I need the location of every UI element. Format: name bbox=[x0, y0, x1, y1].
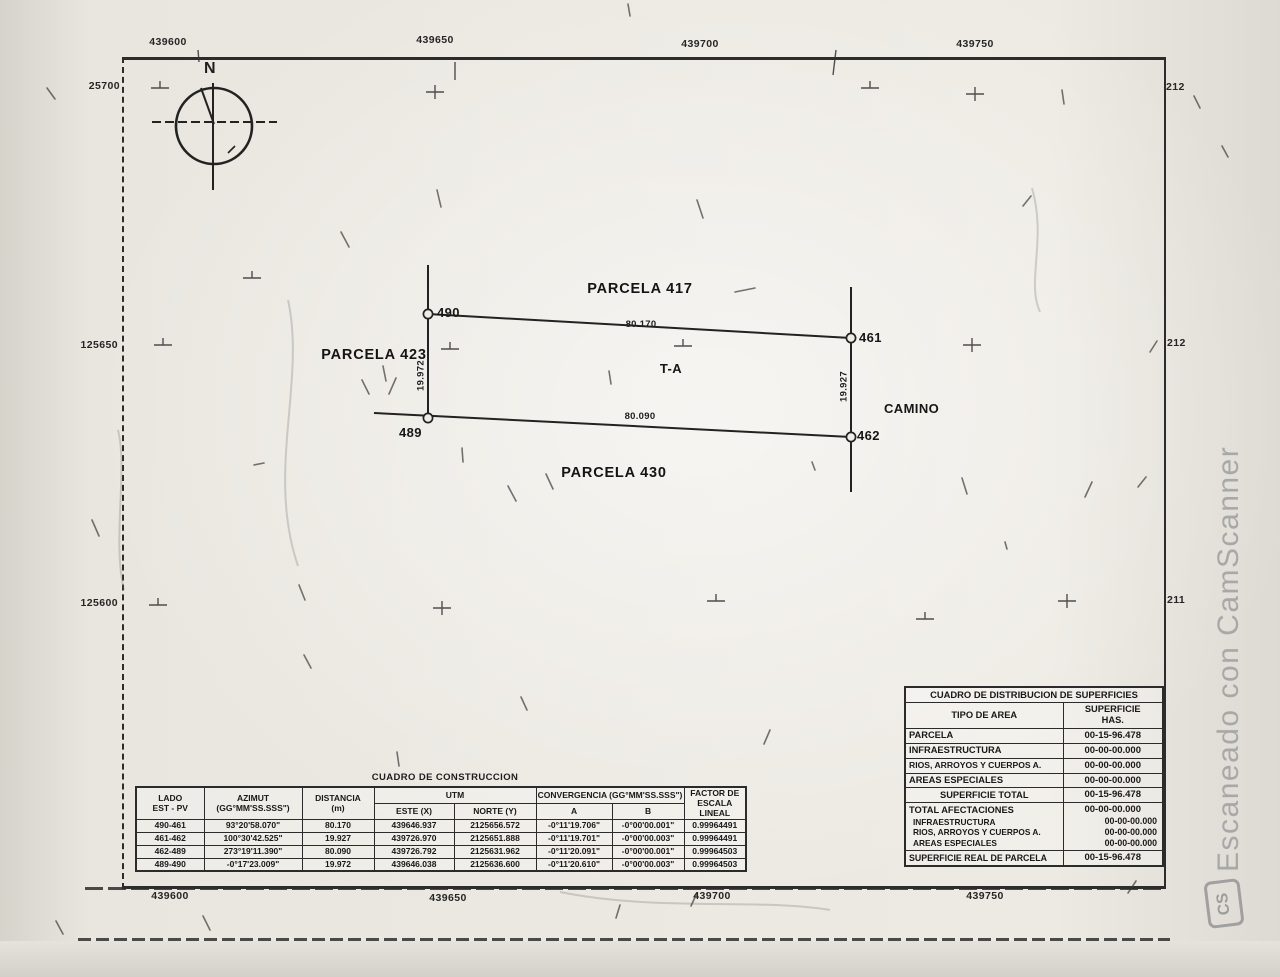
cell-distancia: 19.927 bbox=[302, 833, 374, 846]
cell-a: -0°11'19.701" bbox=[536, 833, 612, 846]
table-row: 461-462 100°30'42.525" 19.927 439726.970… bbox=[136, 833, 746, 846]
cell-factor: 0.99964491 bbox=[684, 833, 746, 846]
cell-factor: 0.99964491 bbox=[684, 820, 746, 833]
col-tipo-de-area: TIPO DE AREA bbox=[905, 702, 1063, 728]
camscanner-watermark: Escaneado con CamScanner bbox=[1212, 446, 1246, 872]
row-value: 00-15-96.478 bbox=[1063, 728, 1163, 743]
neighbor-parcel-bottom: PARCELA 430 bbox=[540, 465, 688, 481]
col-superficie: SUPERFICIE HAS. bbox=[1063, 702, 1163, 728]
grid-label-bottom: 439650 bbox=[418, 892, 478, 904]
grid-label-left: 125600 bbox=[68, 597, 118, 609]
row-label: SUPERFICIE TOTAL bbox=[905, 788, 1063, 803]
north-label: N bbox=[204, 60, 216, 78]
cell-distancia: 19.972 bbox=[302, 858, 374, 871]
road-label: CAMINO bbox=[884, 401, 939, 416]
col-este: ESTE (X) bbox=[374, 804, 454, 820]
grid-label-left: 125650 bbox=[72, 339, 118, 351]
grid-label-right: 212 bbox=[1167, 337, 1186, 349]
col-b: B bbox=[612, 804, 684, 820]
col-lado: LADO EST - PV bbox=[136, 787, 204, 820]
cell-a: -0°11'20.091" bbox=[536, 845, 612, 858]
construction-table-title: CUADRO DE CONSTRUCCION bbox=[335, 772, 555, 783]
col-utm: UTM bbox=[374, 787, 536, 804]
surfaces-row: PARCELA 00-15-96.478 bbox=[905, 728, 1163, 743]
surfaces-total-row: SUPERFICIE TOTAL 00-15-96.478 bbox=[905, 788, 1163, 803]
parcel-outline bbox=[374, 265, 851, 492]
cell-b: -0°00'00.001" bbox=[612, 845, 684, 858]
construction-table: LADO EST - PV AZIMUT (GG°MM'SS.SSS") DIS… bbox=[135, 786, 745, 872]
row-label: INFRAESTRUCTURA bbox=[905, 743, 1063, 758]
vertex-label-489: 489 bbox=[399, 425, 422, 440]
camscanner-logo-text: CS bbox=[1214, 891, 1235, 915]
cell-b: -0°00'00.003" bbox=[612, 833, 684, 846]
grid-label-left: 25700 bbox=[78, 80, 120, 92]
grid-label-top: 439700 bbox=[670, 38, 730, 50]
cell-a: -0°11'20.610" bbox=[536, 858, 612, 871]
camscanner-logo: CS bbox=[1203, 878, 1244, 929]
grid-label-top: 439750 bbox=[945, 38, 1005, 50]
col-norte: NORTE (Y) bbox=[454, 804, 536, 820]
vertex-label-462: 462 bbox=[857, 428, 880, 443]
cell-norte: 2125656.572 bbox=[454, 820, 536, 833]
cell-distancia: 80.170 bbox=[302, 820, 374, 833]
table-header-row: LADO EST - PV AZIMUT (GG°MM'SS.SSS") DIS… bbox=[136, 787, 746, 804]
side-length-left: 19.972 bbox=[416, 355, 427, 397]
surfaces-table-title: CUADRO DE DISTRIBUCION DE SUPERFICIES bbox=[905, 687, 1163, 702]
surfaces-table: CUADRO DE DISTRIBUCION DE SUPERFICIES TI… bbox=[904, 686, 1162, 867]
surfaces-row: RIOS, ARROYOS Y CUERPOS A. 00-00-00.000 bbox=[905, 758, 1163, 773]
vertex-label-461: 461 bbox=[859, 330, 882, 345]
table-row: 490-461 93°20'58.070" 80.170 439646.937 … bbox=[136, 820, 746, 833]
neighbor-parcel-top: PARCELA 417 bbox=[565, 281, 715, 297]
grid-label-top: 439600 bbox=[138, 36, 198, 48]
grid-label-right: 212 bbox=[1166, 81, 1185, 93]
cell-lado: 461-462 bbox=[136, 833, 204, 846]
cell-a: -0°11'19.706" bbox=[536, 820, 612, 833]
cell-azimut: 100°30'42.525" bbox=[204, 833, 302, 846]
cell-norte: 2125651.888 bbox=[454, 833, 536, 846]
row-value: 00-00-00.000 bbox=[1063, 743, 1163, 758]
row-label: PARCELA bbox=[905, 728, 1063, 743]
side-length-bottom: 80.090 bbox=[614, 411, 666, 422]
cell-factor: 0.99964503 bbox=[684, 858, 746, 871]
row-value: 00-00-00.000 bbox=[1063, 758, 1163, 773]
afectaciones-labels: TOTAL AFECTACIONES INFRAESTRUCTURA RIOS,… bbox=[905, 803, 1063, 851]
col-factor: FACTOR DE ESCALA LINEAL bbox=[684, 787, 746, 820]
row-label: SUPERFICIE REAL DE PARCELA bbox=[905, 851, 1063, 866]
cell-este: 439646.038 bbox=[374, 858, 454, 871]
col-convergencia: CONVERGENCIA (GG°MM'SS.SSS") bbox=[536, 787, 684, 804]
cell-factor: 0.99964503 bbox=[684, 845, 746, 858]
col-a: A bbox=[536, 804, 612, 820]
cell-azimut: 93°20'58.070" bbox=[204, 820, 302, 833]
grid-label-bottom: 439600 bbox=[140, 890, 200, 902]
cell-este: 439646.937 bbox=[374, 820, 454, 833]
cell-azimut: -0°17'23.009" bbox=[204, 858, 302, 871]
cell-lado: 490-461 bbox=[136, 820, 204, 833]
surfaces-title-row: CUADRO DE DISTRIBUCION DE SUPERFICIES bbox=[905, 687, 1163, 702]
cell-lado: 462-489 bbox=[136, 845, 204, 858]
surfaces-header-row: TIPO DE AREA SUPERFICIE HAS. bbox=[905, 702, 1163, 728]
scan-bottom-strip bbox=[0, 941, 1280, 977]
cell-b: -0°00'00.003" bbox=[612, 858, 684, 871]
north-arrow bbox=[152, 83, 277, 190]
scanned-survey-document: { "watermark": { "text": "Escaneado con … bbox=[0, 0, 1280, 977]
vertex-label-490: 490 bbox=[437, 305, 460, 320]
grid-ticks bbox=[149, 50, 1076, 619]
cell-b: -0°00'00.001" bbox=[612, 820, 684, 833]
surfaces-afectaciones-row: TOTAL AFECTACIONES INFRAESTRUCTURA RIOS,… bbox=[905, 803, 1163, 851]
row-value: 00-15-96.478 bbox=[1063, 851, 1163, 866]
grid-label-right: 211 bbox=[1167, 594, 1185, 606]
cell-norte: 2125631.962 bbox=[454, 845, 536, 858]
frame-bottom-broken-line bbox=[85, 887, 1163, 890]
table-row: 462-489 273°19'11.390" 80.090 439726.792… bbox=[136, 845, 746, 858]
side-length-top: 80.170 bbox=[615, 319, 667, 330]
afectaciones-values: 00-00-00.000 00-00-00.000 00-00-00.000 0… bbox=[1063, 803, 1163, 851]
grid-label-top: 439650 bbox=[405, 34, 465, 46]
cell-lado: 489-490 bbox=[136, 858, 204, 871]
lot-label: T-A bbox=[650, 361, 692, 376]
col-azimut: AZIMUT (GG°MM'SS.SSS") bbox=[204, 787, 302, 820]
grid-label-bottom: 439750 bbox=[955, 890, 1015, 902]
row-value: 00-00-00.000 bbox=[1063, 773, 1163, 788]
side-length-right: 19.927 bbox=[839, 366, 850, 408]
row-value: 00-15-96.478 bbox=[1063, 788, 1163, 803]
row-label: AREAS ESPECIALES bbox=[905, 773, 1063, 788]
cell-este: 439726.970 bbox=[374, 833, 454, 846]
surfaces-final-row: SUPERFICIE REAL DE PARCELA 00-15-96.478 bbox=[905, 851, 1163, 866]
row-label: RIOS, ARROYOS Y CUERPOS A. bbox=[905, 758, 1063, 773]
cell-este: 439726.792 bbox=[374, 845, 454, 858]
cell-distancia: 80.090 bbox=[302, 845, 374, 858]
surfaces-row: AREAS ESPECIALES 00-00-00.000 bbox=[905, 773, 1163, 788]
cell-azimut: 273°19'11.390" bbox=[204, 845, 302, 858]
table-row: 489-490 -0°17'23.009" 19.972 439646.038 … bbox=[136, 858, 746, 871]
grid-label-bottom: 439700 bbox=[682, 890, 742, 902]
cell-norte: 2125636.600 bbox=[454, 858, 536, 871]
surfaces-row: INFRAESTRUCTURA 00-00-00.000 bbox=[905, 743, 1163, 758]
col-distancia: DISTANCIA (m) bbox=[302, 787, 374, 820]
